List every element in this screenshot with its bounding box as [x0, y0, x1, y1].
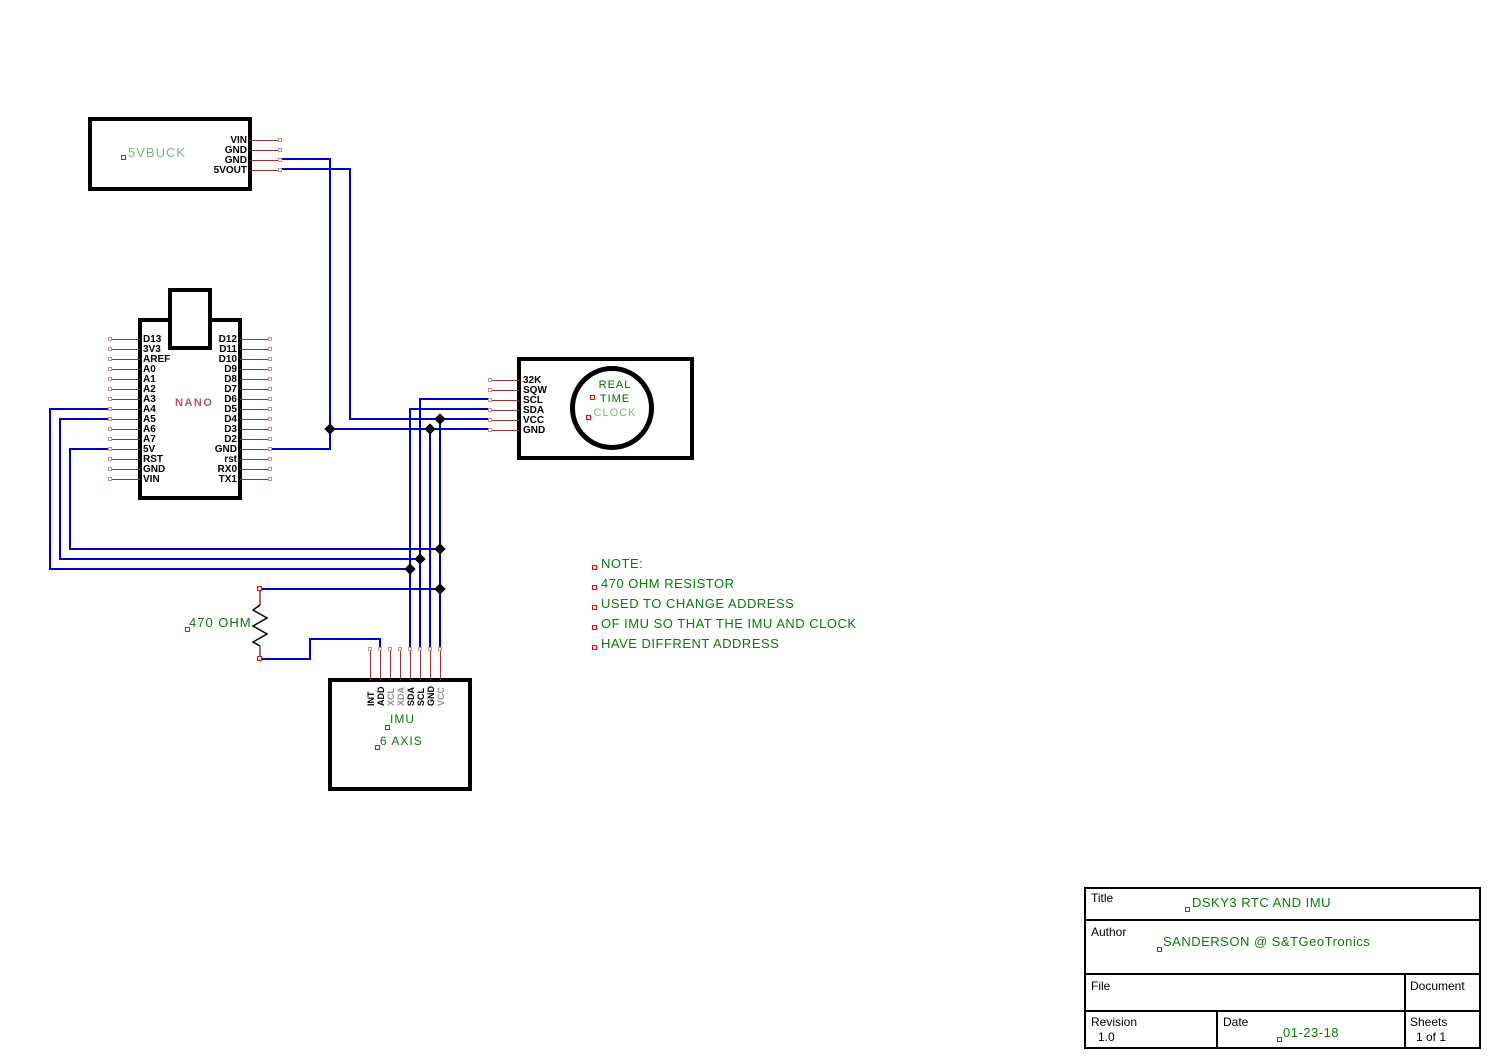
pin-end-marker [408, 647, 412, 651]
pin-D4 [240, 419, 270, 420]
pin-end-marker [488, 408, 492, 412]
pin-end-marker [268, 417, 272, 421]
text-anchor-marker [257, 586, 262, 591]
junction-dot [434, 583, 445, 594]
pin-SDA [490, 410, 519, 411]
pin-VCC [490, 420, 519, 421]
pin-A5 [110, 419, 140, 420]
pin-SCL [490, 400, 519, 401]
pin-label-GND: GND [523, 425, 583, 436]
pin-D11 [240, 349, 270, 350]
pin-end-marker [268, 357, 272, 361]
titleblock-document-label: Document [1410, 979, 1465, 993]
text-anchor-marker [121, 155, 126, 160]
pin-INT [370, 649, 371, 680]
pin-GND [240, 449, 270, 450]
text-anchor-marker [592, 565, 597, 570]
pin-end-marker [488, 418, 492, 422]
pin-end-marker [488, 378, 492, 382]
pin-D12 [240, 339, 270, 340]
wire-segment[interactable] [419, 398, 491, 400]
pin-end-marker [108, 457, 112, 461]
wire-segment[interactable] [279, 168, 351, 170]
wire-segment[interactable] [259, 588, 441, 590]
component-label-imu-axis[interactable]: 6 AXIS [380, 734, 423, 748]
pin-label-XCL: XCL [386, 679, 396, 706]
rtc-label-time: TIME [575, 392, 655, 406]
titleblock-divider [1084, 973, 1481, 975]
pin-end-marker [268, 387, 272, 391]
wire-segment[interactable] [309, 638, 311, 660]
component-label-imu[interactable]: IMU [390, 712, 415, 726]
pin-D10 [240, 359, 270, 360]
text-anchor-marker [592, 625, 597, 630]
pin-end-marker [108, 417, 112, 421]
pin-D9 [240, 369, 270, 370]
pin-VIN [250, 140, 280, 141]
pin-end-marker [108, 347, 112, 351]
pin-D13 [110, 339, 140, 340]
pin-end-marker [268, 407, 272, 411]
wire-segment[interactable] [409, 408, 411, 650]
pin-end-marker [108, 367, 112, 371]
pin-D7 [240, 389, 270, 390]
pin-end-marker [108, 337, 112, 341]
note-line[interactable]: NOTE: [601, 556, 643, 571]
text-anchor-marker [1185, 907, 1190, 912]
pin-end-marker [108, 437, 112, 441]
junction-dot [434, 413, 445, 424]
junction-dot [424, 423, 435, 434]
text-anchor-marker [257, 656, 262, 661]
component-label-rtc[interactable]: REAL TIME CLOCK [575, 378, 655, 420]
pin-end-marker [268, 337, 272, 341]
pin-D5 [240, 409, 270, 410]
pin-GND [250, 160, 280, 161]
titleblock-author-value[interactable]: SANDERSON @ S&TGeoTronics [1163, 934, 1370, 949]
text-anchor-marker [385, 725, 390, 730]
pin-end-marker [108, 397, 112, 401]
pin-label-SDA: SDA [406, 679, 416, 706]
pin-A0 [110, 369, 140, 370]
pin-A4 [110, 409, 140, 410]
pin-end-marker [108, 387, 112, 391]
wire-segment[interactable] [69, 448, 111, 450]
titleblock-revision-value[interactable]: 1.0 [1098, 1030, 1115, 1044]
pin-end-marker [268, 377, 272, 381]
wire-segment[interactable] [49, 408, 111, 410]
wire-segment[interactable] [309, 638, 381, 640]
pin-label-TX1: TX1 [177, 474, 237, 485]
note-line[interactable]: OF IMU SO THAT THE IMU AND CLOCK [601, 616, 857, 631]
pin-end-marker [488, 398, 492, 402]
wire-segment[interactable] [59, 558, 421, 560]
wire-segment[interactable] [69, 448, 71, 550]
note-line[interactable]: 470 OHM RESISTOR [601, 576, 734, 591]
pin-end-marker [278, 168, 282, 172]
pin-end-marker [108, 407, 112, 411]
pin-end-marker [108, 357, 112, 361]
pin-end-marker [378, 647, 382, 651]
titleblock-divider [1216, 1010, 1218, 1049]
pin-label-INT: INT [366, 679, 376, 706]
text-anchor-marker [592, 585, 597, 590]
titleblock-date-label: Date [1223, 1015, 1248, 1029]
pin-SQW [490, 390, 519, 391]
pin-VCC [440, 649, 441, 680]
wire-segment[interactable] [409, 408, 491, 410]
junction-dot [434, 543, 445, 554]
pin-GND [110, 469, 140, 470]
wire-segment[interactable] [429, 428, 431, 650]
pin-D3 [240, 429, 270, 430]
pin-end-marker [268, 437, 272, 441]
pin-GND [430, 649, 431, 680]
pin-end-marker [268, 347, 272, 351]
pin-label-SCL: SCL [416, 679, 426, 706]
text-anchor-marker [185, 627, 190, 632]
pin-A6 [110, 429, 140, 430]
pin-A2 [110, 389, 140, 390]
pin-end-marker [278, 158, 282, 162]
wire-segment[interactable] [49, 408, 51, 570]
pin-label-GND: GND [426, 679, 436, 706]
wire-segment[interactable] [439, 418, 441, 650]
pin-end-marker [108, 427, 112, 431]
pin-end-marker [108, 377, 112, 381]
pin-D8 [240, 379, 270, 380]
wire-segment[interactable] [59, 418, 61, 560]
text-anchor-marker [592, 645, 597, 650]
pin-end-marker [278, 138, 282, 142]
wire-segment[interactable] [269, 448, 331, 450]
wire-segment[interactable] [59, 418, 111, 420]
pin-label-XDA: XDA [396, 679, 406, 706]
pin-AREF [110, 359, 140, 360]
component-label-5vbuck[interactable]: 5VBUCK [128, 145, 186, 160]
note-line[interactable]: HAVE DIFFRENT ADDRESS [601, 636, 779, 651]
pin-end-marker [428, 647, 432, 651]
pin-5V [110, 449, 140, 450]
pin-ADD [380, 649, 381, 680]
pin-XCL [390, 649, 391, 680]
pin-label-ADD: ADD [376, 679, 386, 706]
titleblock-revision-label: Revision [1091, 1015, 1137, 1029]
wire-segment[interactable] [49, 568, 411, 570]
note-line[interactable]: USED TO CHANGE ADDRESS [601, 596, 794, 611]
pin-A1 [110, 379, 140, 380]
text-anchor-marker [586, 415, 591, 420]
text-anchor-marker [1277, 1037, 1282, 1042]
pin-RST [110, 459, 140, 460]
titleblock-date-value[interactable]: 01-23-18 [1283, 1025, 1339, 1040]
text-anchor-marker [590, 395, 595, 400]
titleblock-divider [1404, 973, 1406, 1049]
titleblock-title-value[interactable]: DSKY3 RTC AND IMU [1192, 895, 1331, 910]
pin-SDA [410, 649, 411, 680]
pin-label-5VOUT: 5VOUT [187, 165, 247, 176]
pin-end-marker [418, 647, 422, 651]
pin-32K [490, 380, 519, 381]
wire-segment[interactable] [279, 158, 331, 160]
titleblock-divider [1084, 919, 1481, 921]
text-anchor-marker [375, 745, 380, 750]
pin-end-marker [268, 457, 272, 461]
wire-segment[interactable] [329, 158, 331, 450]
pin-end-marker [108, 447, 112, 451]
pin-end-marker [278, 148, 282, 152]
pin-end-marker [108, 467, 112, 471]
rtc-label-real: REAL [575, 378, 655, 392]
pin-5VOUT [250, 170, 280, 171]
pin-end-marker [268, 367, 272, 371]
junction-dot [324, 423, 335, 434]
titleblock-sheets-label: Sheets [1410, 1015, 1447, 1029]
pin-A3 [110, 399, 140, 400]
junction-dot [414, 553, 425, 564]
titleblock-title-label: Title [1091, 891, 1113, 905]
pin-end-marker [398, 647, 402, 651]
pin-VIN [110, 479, 140, 480]
titleblock-divider [1084, 1010, 1481, 1012]
pin-end-marker [438, 647, 442, 651]
pin-end-marker [268, 397, 272, 401]
pin-TX1 [240, 479, 270, 480]
pin-XDA [400, 649, 401, 680]
wire-segment[interactable] [419, 398, 421, 650]
schematic-canvas[interactable]: 5VBUCK NANO REAL TIME CLOCK IMU 6 AXIS 4… [0, 0, 1495, 1060]
text-anchor-marker [592, 605, 597, 610]
resistor-value-label[interactable]: 470 OHM [189, 615, 252, 630]
pin-SCL [420, 649, 421, 680]
pin-D2 [240, 439, 270, 440]
pin-end-marker [268, 427, 272, 431]
pin-end-marker [268, 447, 272, 451]
pin-GND [490, 430, 519, 431]
titleblock-sheets-value[interactable]: 1 of 1 [1416, 1030, 1446, 1044]
wire-segment[interactable] [259, 658, 311, 660]
pin-end-marker [268, 467, 272, 471]
pin-RX0 [240, 469, 270, 470]
pin-end-marker [488, 428, 492, 432]
pin-3V3 [110, 349, 140, 350]
titleblock-file-label: File [1091, 979, 1110, 993]
wire-segment[interactable] [69, 548, 441, 550]
pin-end-marker [108, 477, 112, 481]
pin-label-VCC: VCC [436, 679, 446, 706]
pin-D6 [240, 399, 270, 400]
junction-dot [404, 563, 415, 574]
pin-end-marker [368, 647, 372, 651]
pin-GND [250, 150, 280, 151]
pin-rst [240, 459, 270, 460]
pin-end-marker [268, 477, 272, 481]
pin-end-marker [488, 388, 492, 392]
text-anchor-marker [1157, 947, 1162, 952]
wire-segment[interactable] [349, 168, 351, 420]
titleblock-author-label: Author [1091, 925, 1126, 939]
pin-end-marker [388, 647, 392, 651]
pin-A7 [110, 439, 140, 440]
